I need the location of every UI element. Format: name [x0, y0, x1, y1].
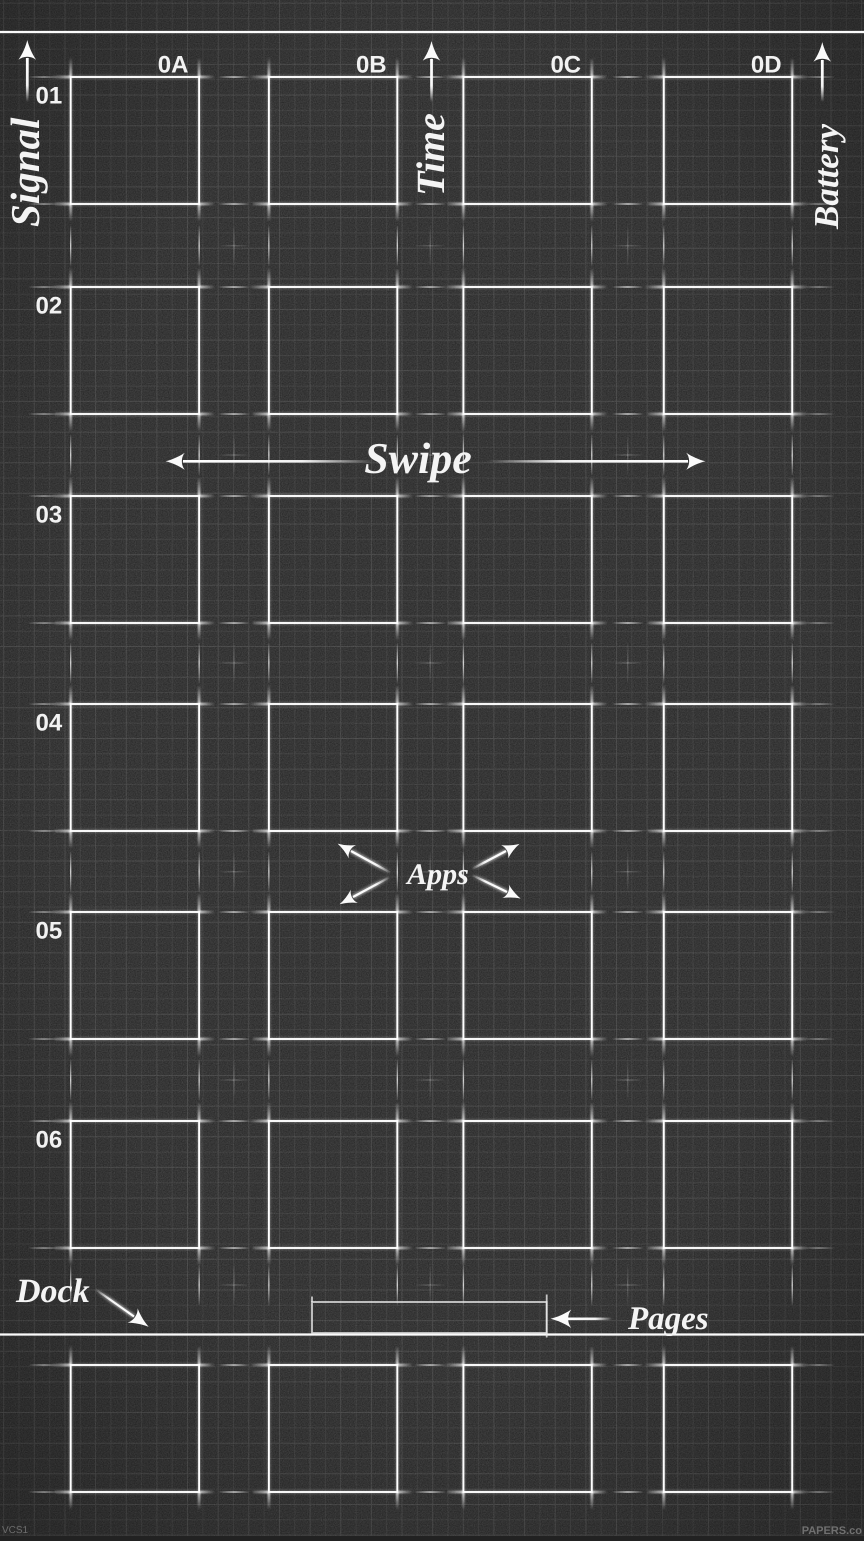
svg-text:Swipe: Swipe: [364, 434, 472, 483]
svg-text:03: 03: [35, 502, 62, 529]
svg-text:Battery: Battery: [807, 124, 846, 230]
svg-text:01: 01: [35, 83, 62, 110]
svg-text:Dock: Dock: [15, 1273, 90, 1310]
svg-text:0A: 0A: [158, 52, 189, 79]
svg-text:05: 05: [35, 918, 62, 945]
svg-text:Apps: Apps: [405, 858, 469, 891]
svg-text:Time: Time: [408, 113, 453, 196]
svg-text:02: 02: [35, 293, 62, 320]
svg-text:Pages: Pages: [627, 1301, 709, 1337]
svg-text:06: 06: [35, 1127, 62, 1154]
svg-text:0D: 0D: [751, 52, 782, 79]
svg-text:0B: 0B: [356, 52, 387, 79]
svg-text:PAPERS.co: PAPERS.co: [802, 1525, 863, 1536]
svg-text:Signal: Signal: [2, 117, 48, 227]
svg-text:04: 04: [35, 710, 62, 737]
svg-text:VCS1: VCS1: [2, 1525, 29, 1536]
svg-text:0C: 0C: [550, 52, 581, 79]
